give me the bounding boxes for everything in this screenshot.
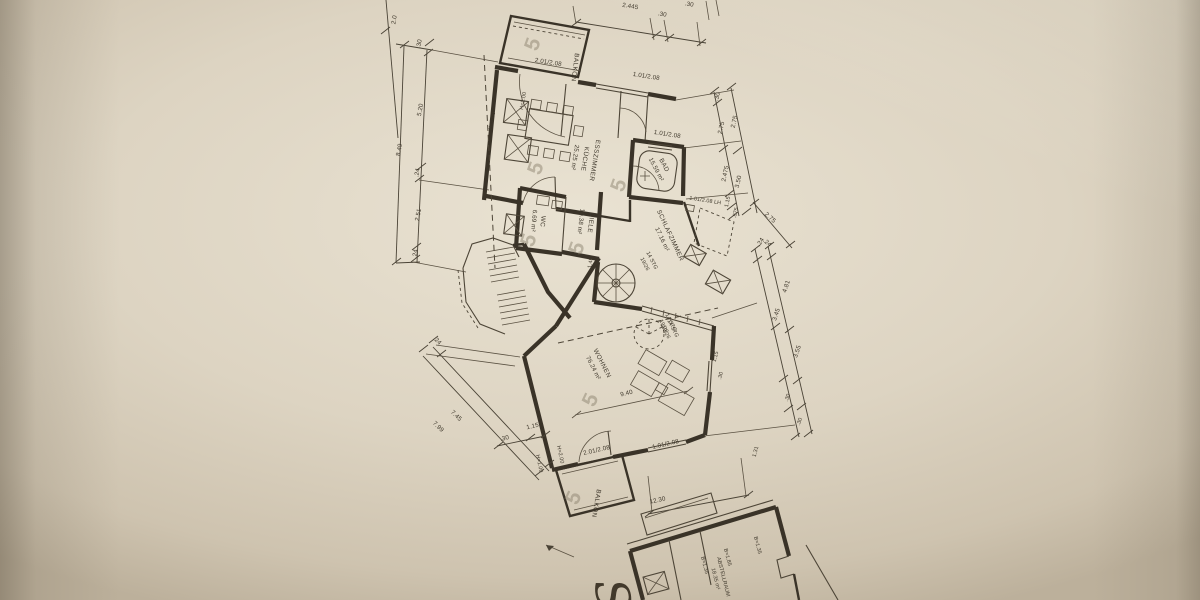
height-label: H=2.00 [555,445,565,464]
room-diele: DIELE 10.38 m² 5 [562,192,630,259]
sofa-rect [630,371,659,397]
dimension-chain-right-upper: .30 2.75 2.75 2.475 3.50 1.15 .875 2.75 … [676,83,795,249]
dim-label: .30 [657,10,667,18]
dim-label: .30 [684,0,694,8]
corridor-closet [618,91,648,142]
room-label-bad: BAD 15.59 m² [647,152,673,182]
chain-line [576,22,706,43]
corridor-stub [600,200,630,222]
room-label-wohnen: WOHNEN 76.24 m² [583,348,613,384]
pillar-box [684,244,707,265]
dim-label: .30 [796,417,804,426]
faint-five-mark: 5 [523,159,549,178]
step-treads-lower [497,290,530,325]
dim-label: 12.30 [649,495,667,505]
door-size-label: 2.01/2.08 [534,57,562,68]
chain-line-outer [768,246,812,434]
floorplan-drawing: 2.0 .30 5.20 8.49 .24 2.51 .24 2.445 .30… [0,0,1200,600]
room-label-balkon: BALKON [590,489,602,518]
chair [546,102,557,112]
window-double-line [596,84,648,97]
dim-label: 2.51 [414,208,423,222]
room-label-esszimmer: ESSZIMMER KÜCHE 25.25 m² [568,136,601,182]
dim-label: .24 [411,248,420,259]
faint-five-mark: 5 [520,35,546,54]
door-size-label: 2.01/2.08 [583,444,611,457]
extension-lines [704,303,795,436]
dimension-chain-right-lower: .24 4.81 3.45 3.55 .30 .30 [704,236,813,440]
chair [573,125,583,136]
room-label-wc: WC 6.69 m² [529,209,547,232]
drain-cross [640,171,650,181]
lower-unit: B=1.35 B=1.85 B=1.35 ABSTELLRAUM 18.35 m… [627,493,838,600]
dimension-chain-left: 2.0 .30 5.20 8.49 .24 2.51 .24 [381,0,498,272]
extension-lines [573,0,719,46]
width-label: B=1.35 [699,556,709,575]
chain-line-inner [417,50,427,262]
unit-right-notch [777,556,794,578]
room-balkon-bottom: BALKON 5 2.01/2.08 1.01/2.08 H=2.00 H=1.… [534,431,680,518]
room-wohnen: WOHNEN 76.24 m² 5 9.40 14 STG 19/26 1.15… [524,258,731,470]
dim-label: 1.31 [752,446,761,458]
chain-line-outer [423,356,539,480]
east-boundary [684,202,699,246]
dim-label: 7.99 [431,420,445,434]
dim-label: 3.45 [771,307,782,322]
sofa-group [627,346,705,415]
bay-outline [463,238,519,334]
balcony-above-dashed [694,208,734,256]
door-swing-arc [620,108,646,132]
window-size-label: 1.01/2.08 [652,438,680,451]
dim-label: 2.475 [720,165,730,183]
chair [543,148,554,158]
sofa-rect [658,383,694,415]
pillar-cross [684,244,707,265]
dim-label: 4.81 [781,279,792,294]
unit-top-wall-inner [627,500,773,544]
height-label: H=1.00 [488,111,497,130]
faint-five-mark: 5 [606,176,632,195]
dim-label: 1.15 [724,196,732,208]
pillar-box [705,270,730,294]
chair [559,151,570,161]
width-label: B=1.35 [752,536,762,555]
sofa-rect [665,360,689,382]
unit-fixture-box [643,571,669,594]
dim-label: 3.55 [792,344,803,359]
east-window [707,360,712,392]
coffee-table [655,383,668,395]
room-label-diele: DIELE 10.38 m² [575,208,595,236]
chair [527,145,538,155]
room-area: 25.25 m² [569,144,580,170]
dim-label: .24 [431,335,443,347]
entry-wall [524,244,570,318]
faint-five-mark: 5 [561,488,587,509]
room-schlafzimmer: 1.01/2.08 LH SCHLAFZIMMER 17.16 m² 14 ST… [637,196,734,275]
chair [530,99,541,109]
door-leaf [561,84,566,136]
partition [618,91,648,142]
stamp: SP [546,545,648,600]
unit-right-wall [776,507,789,556]
dim-label: .24 [413,167,422,178]
dim-label: 1.15 [712,351,720,363]
dim-label: .30 [499,434,510,443]
chain-line-inner [433,347,549,471]
dim-label: 9.40 [620,389,634,399]
room-name: WC [538,215,546,227]
faint-five-mark: 5 [578,390,604,411]
chain-line-inner [755,249,799,437]
window-band [642,306,714,331]
dim-label: 2.445 [622,2,640,12]
toilet [536,195,549,206]
pillar-cross [705,270,730,294]
dimension-chain-top: 2.445 .30 .30 [572,0,719,46]
dim-label: .30 [415,38,424,49]
dim-label: 7.45 [449,409,463,423]
extension-lines [648,458,746,512]
dim-label: 3.50 [734,174,744,188]
dim-label: .875 [732,207,740,219]
east-wall [705,326,714,435]
entry-wall-top [513,244,524,245]
room-bad: BAD 15.59 m² 1.01/2.08 5 [606,129,684,203]
window-size-label: 1.01/2.08 [632,71,660,82]
floorplan-photo: 2.0 .30 5.20 8.49 .24 2.51 .24 2.445 .30… [0,0,1200,600]
unit-right-lower [794,574,799,600]
bay-dashed-edge [458,270,478,328]
dim-label: .30 [717,371,725,380]
extension-lines [426,345,520,366]
dim-label: 2.75 [717,120,727,134]
dim-label: 2.75 [730,114,740,128]
stair-label: 14 STG 19/26 [637,251,658,274]
sofa-rect [638,350,667,376]
room-area: 6.69 m² [529,209,538,232]
window-size-label: 1.01/2.08 [653,129,681,140]
room-name: ESSZIMMER [588,139,601,182]
table [525,109,573,146]
dimension-chain-bottom-left: .24 7.45 7.99 [419,335,554,480]
dim-label: 1.15 [526,422,540,432]
dim-label: 2.0 [390,14,399,25]
dim-label: 8.49 [395,143,404,157]
far-right-wall [806,545,838,600]
step-treads-upper [486,247,519,282]
room-name: KÜCHE [579,146,591,172]
